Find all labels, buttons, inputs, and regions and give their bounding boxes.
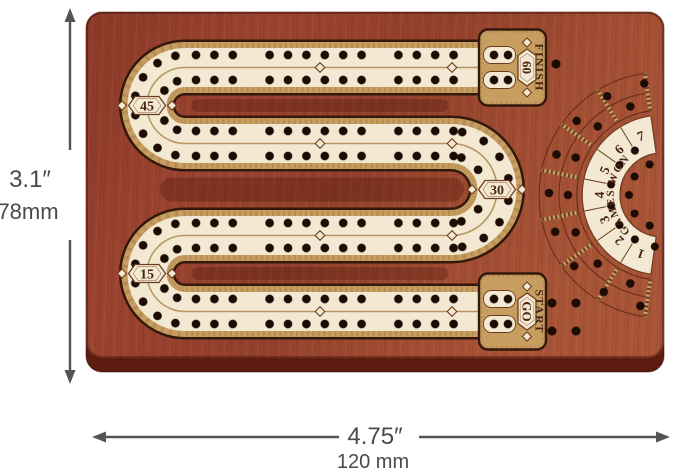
peg-hole [139, 130, 147, 138]
peg-hole [431, 127, 439, 135]
peg-hole [284, 152, 292, 160]
peg-hole [631, 173, 639, 181]
peg-hole [651, 243, 659, 251]
peg-hole [431, 76, 439, 84]
peg-hole [450, 320, 458, 328]
peg-hole [171, 319, 179, 327]
peg-hole [266, 127, 274, 135]
peg-hole [171, 220, 179, 228]
peg-hole [413, 152, 421, 160]
peg-hole [646, 222, 654, 230]
serpentine-track: 45301560FINISHGOSTART [117, 30, 580, 350]
peg-hole [229, 320, 237, 328]
peg-hole [171, 151, 179, 159]
width-inches-label: 4.75″ [347, 423, 403, 450]
peg-hole [302, 76, 310, 84]
peg-hole [394, 127, 402, 135]
peg-hole [572, 327, 581, 336]
peg-hole [626, 103, 634, 111]
peg-hole [192, 295, 200, 303]
peg-hole [394, 76, 402, 84]
peg-hole [490, 76, 498, 84]
peg-hole [552, 60, 561, 69]
peg-hole [594, 260, 602, 268]
peg-hole [572, 228, 580, 236]
peg-hole [457, 217, 465, 225]
peg-hole [284, 127, 292, 135]
peg-hole [160, 254, 168, 262]
peg-hole [504, 295, 512, 303]
peg-hole [358, 320, 366, 328]
peg-hole [450, 295, 458, 303]
peg-hole [600, 288, 608, 296]
track-number: 45 [140, 100, 154, 115]
peg-hole [321, 219, 329, 227]
peg-hole [302, 219, 310, 227]
peg-hole [545, 189, 553, 197]
peg-hole [229, 152, 237, 160]
block-label-start: START [532, 289, 546, 333]
cribbage-board: 45301560FINISHGOSTART1234567GAMES WON [86, 12, 664, 372]
peg-hole [160, 86, 168, 94]
height-inches-label: 3.1″ [9, 166, 51, 193]
peg-hole [450, 51, 458, 59]
end-block-finish: 60FINISH [479, 30, 546, 106]
peg-hole [284, 219, 292, 227]
peg-hole [302, 152, 310, 160]
peg-hole [480, 137, 488, 145]
arrow-right-icon [656, 432, 670, 443]
peg-hole [339, 219, 347, 227]
peg-hole [646, 161, 654, 169]
peg-hole [636, 302, 644, 310]
peg-hole [284, 320, 292, 328]
peg-hole [450, 152, 458, 160]
peg-hole [302, 320, 310, 328]
peg-hole [266, 51, 274, 59]
peg-hole [266, 320, 274, 328]
peg-hole [229, 127, 237, 135]
peg-hole [210, 244, 218, 252]
peg-hole [210, 127, 218, 135]
peg-hole [394, 295, 402, 303]
peg-hole [625, 191, 633, 199]
peg-hole [266, 295, 274, 303]
peg-hole [413, 76, 421, 84]
peg-hole [153, 144, 161, 152]
peg-hole [192, 51, 200, 59]
peg-hole [548, 327, 557, 336]
end-block-start: GOSTART [479, 274, 546, 350]
peg-hole [192, 219, 200, 227]
peg-hole [394, 152, 402, 160]
peg-hole [358, 76, 366, 84]
width-mm-label: 120 mm [337, 451, 409, 473]
peg-hole [594, 122, 602, 130]
peg-hole [139, 241, 147, 249]
peg-hole [192, 244, 200, 252]
peg-hole [284, 76, 292, 84]
peg-hole [192, 76, 200, 84]
peg-hole [339, 127, 347, 135]
peg-hole [173, 126, 181, 134]
product-photo: 45301560FINISHGOSTART1234567GAMES WON 3.… [0, 0, 679, 473]
peg-hole [302, 51, 310, 59]
peg-hole [573, 117, 581, 125]
peg-hole [229, 219, 237, 227]
peg-hole [229, 295, 237, 303]
peg-hole [153, 59, 161, 67]
peg-hole [394, 219, 402, 227]
peg-hole [171, 52, 179, 60]
peg-hole [626, 280, 634, 288]
peg-hole [321, 244, 329, 252]
peg-hole [284, 244, 292, 252]
peg-hole [631, 147, 639, 155]
peg-hole [474, 205, 482, 213]
height-mm-label: 78mm [0, 199, 59, 224]
peg-hole [551, 228, 559, 236]
peg-hole [358, 127, 366, 135]
peg-hole [321, 320, 329, 328]
peg-hole [413, 244, 421, 252]
peg-hole [490, 320, 498, 328]
peg-hole [266, 76, 274, 84]
peg-hole [339, 152, 347, 160]
peg-hole [358, 51, 366, 59]
peg-hole [321, 51, 329, 59]
peg-hole [160, 116, 168, 124]
peg-hole [358, 295, 366, 303]
peg-hole [431, 320, 439, 328]
peg-hole [210, 320, 218, 328]
fan-number: 4 [592, 191, 607, 198]
peg-hole [394, 320, 402, 328]
peg-hole [457, 154, 465, 162]
peg-hole [413, 320, 421, 328]
peg-hole [548, 299, 557, 308]
peg-hole [358, 219, 366, 227]
peg-hole [192, 320, 200, 328]
arrow-up-icon [65, 8, 76, 22]
peg-hole [153, 312, 161, 320]
peg-hole [139, 73, 147, 81]
peg-hole [572, 154, 580, 162]
peg-hole [173, 294, 181, 302]
peg-hole [480, 234, 488, 242]
peg-hole [394, 51, 402, 59]
peg-hole [474, 166, 482, 174]
track-number: GO [519, 301, 534, 321]
peg-hole [339, 295, 347, 303]
peg-hole [640, 79, 648, 87]
peg-hole [321, 76, 329, 84]
peg-hole [572, 299, 581, 308]
peg-hole [358, 152, 366, 160]
peg-hole [192, 127, 200, 135]
peg-hole [504, 320, 512, 328]
track-number: 15 [140, 268, 154, 283]
peg-hole [495, 153, 503, 161]
cribbage-board-figure: 45301560FINISHGOSTART1234567GAMES WON 3.… [0, 0, 679, 473]
peg-hole [339, 244, 347, 252]
peg-hole [564, 191, 572, 199]
peg-hole [603, 92, 611, 100]
height-dimension-annotation [65, 8, 76, 384]
peg-hole [490, 295, 498, 303]
peg-hole [504, 76, 512, 84]
peg-hole [458, 128, 466, 136]
peg-hole [504, 51, 512, 59]
peg-hole [431, 152, 439, 160]
peg-hole [431, 244, 439, 252]
peg-hole [413, 295, 421, 303]
peg-hole [173, 245, 181, 253]
peg-hole [139, 298, 147, 306]
peg-hole [302, 244, 310, 252]
peg-hole [431, 219, 439, 227]
peg-hole [321, 295, 329, 303]
peg-hole [160, 284, 168, 292]
peg-hole [229, 76, 237, 84]
peg-hole [321, 152, 329, 160]
peg-hole [458, 243, 466, 251]
peg-hole [358, 244, 366, 252]
peg-hole [339, 76, 347, 84]
peg-hole [210, 76, 218, 84]
peg-hole [394, 244, 402, 252]
peg-hole [431, 295, 439, 303]
peg-hole [570, 262, 578, 270]
peg-hole [266, 152, 274, 160]
peg-hole [210, 152, 218, 160]
peg-hole [339, 51, 347, 59]
peg-hole [413, 219, 421, 227]
peg-hole [339, 320, 347, 328]
peg-hole [431, 51, 439, 59]
peg-hole [173, 77, 181, 85]
peg-hole [153, 227, 161, 235]
track-number: 60 [519, 61, 534, 74]
peg-hole [302, 295, 310, 303]
peg-hole [192, 152, 200, 160]
peg-hole [413, 51, 421, 59]
arrow-down-icon [65, 370, 76, 384]
peg-hole [266, 244, 274, 252]
peg-hole [450, 127, 458, 135]
peg-hole [229, 51, 237, 59]
peg-hole [450, 76, 458, 84]
peg-hole [321, 127, 329, 135]
peg-hole [210, 51, 218, 59]
peg-hole [413, 127, 421, 135]
peg-hole [495, 218, 503, 226]
peg-hole [284, 295, 292, 303]
peg-hole [210, 295, 218, 303]
peg-hole [284, 51, 292, 59]
peg-hole [266, 219, 274, 227]
peg-hole [210, 219, 218, 227]
block-label-finish: FINISH [532, 44, 546, 92]
peg-hole [631, 236, 639, 244]
peg-hole [553, 151, 561, 159]
peg-hole [490, 51, 498, 59]
peg-hole [302, 127, 310, 135]
arrow-left-icon [92, 432, 106, 443]
peg-hole [450, 244, 458, 252]
peg-hole [631, 210, 639, 218]
track-number: 30 [490, 184, 504, 199]
peg-hole [229, 244, 237, 252]
peg-hole [450, 219, 458, 227]
